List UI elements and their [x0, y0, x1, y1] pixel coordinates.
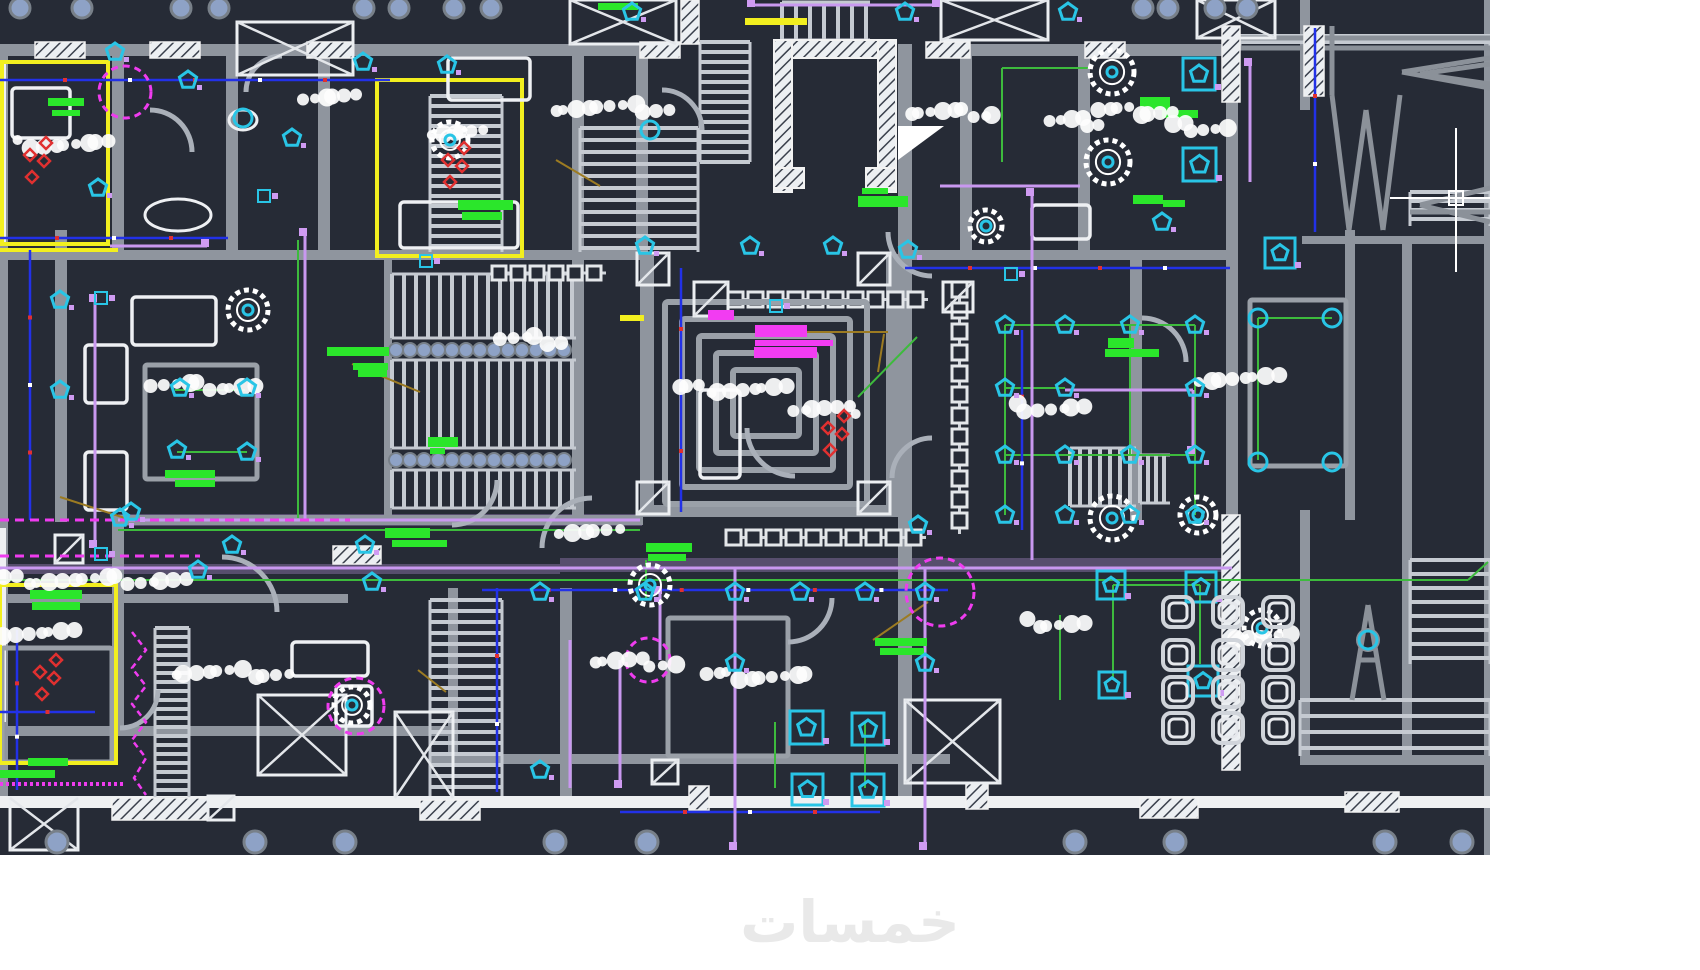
cad-drawing[interactable]: [0, 0, 1490, 855]
watermark-khamsat-logo: خمسات: [0, 893, 1700, 951]
